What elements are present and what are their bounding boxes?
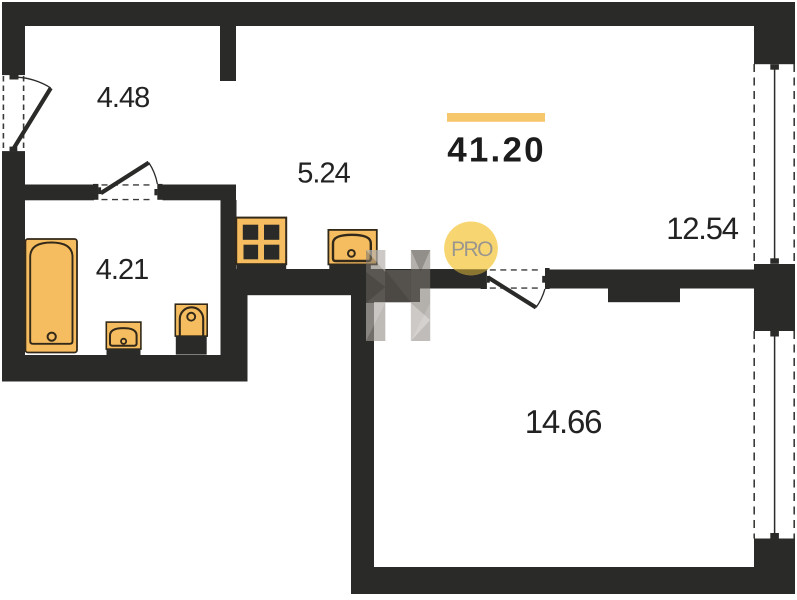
svg-text:14.66: 14.66	[525, 403, 602, 440]
svg-text:12.54: 12.54	[666, 211, 739, 246]
svg-text:PRO: PRO	[451, 238, 493, 261]
svg-text:41.20: 41.20	[447, 130, 546, 169]
svg-text:4.48: 4.48	[97, 82, 149, 114]
svg-text:4.21: 4.21	[96, 254, 148, 286]
svg-text:5.24: 5.24	[297, 157, 350, 189]
